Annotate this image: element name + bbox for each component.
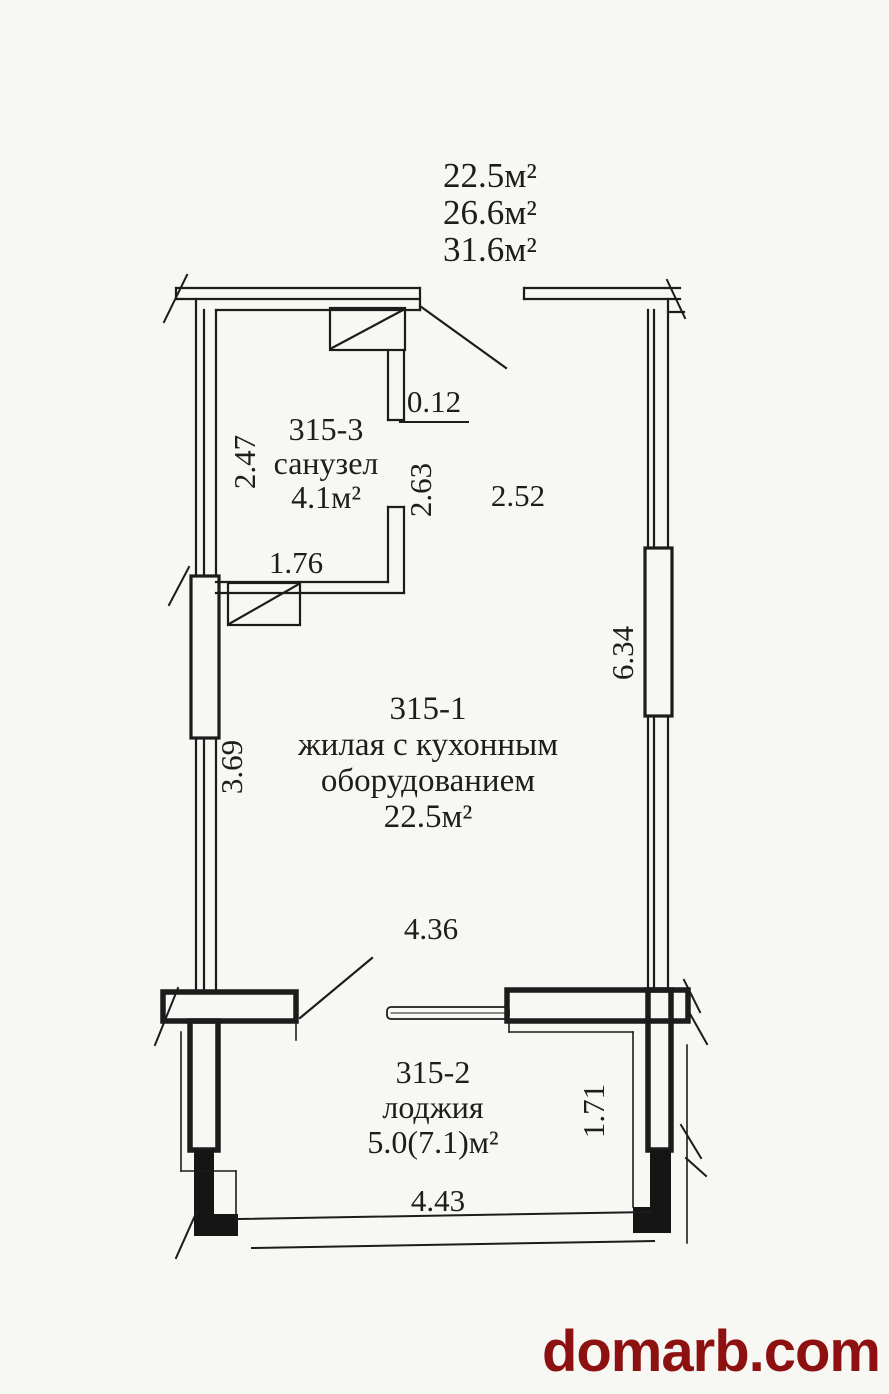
room-living-area: 22.5м² xyxy=(298,799,558,835)
dim-living-left-wall: 3.69 xyxy=(214,717,250,817)
room-bathroom-area: 4.1м² xyxy=(236,480,416,514)
dim-loggia-depth: 1.71 xyxy=(576,1061,612,1161)
room-label-living: 315-1 жилая с кухонным оборудованием 22.… xyxy=(298,691,558,835)
watermark-domarb: domarb.com xyxy=(542,1318,880,1385)
room-living-name1: жилая с кухонным xyxy=(298,727,558,763)
room-living-name2: оборудованием xyxy=(298,763,558,799)
dim-loggia-width: 4.43 xyxy=(388,1183,488,1219)
dim-bathroom-door-wall: 1.76 xyxy=(246,545,346,581)
top-wall-left xyxy=(176,288,420,310)
area-summary-line-2: 26.6м² xyxy=(443,194,537,231)
dim-duct-offset: 0.12 xyxy=(399,384,469,423)
area-summary-line-1: 22.5м² xyxy=(443,157,537,194)
dim-living-right-wall: 6.34 xyxy=(605,603,641,703)
room-loggia-id: 315-2 xyxy=(323,1055,543,1090)
room-bathroom-name: санузел xyxy=(236,446,416,480)
top-wall-right xyxy=(524,288,684,312)
room-label-loggia: 315-2 лоджия 5.0(7.1)м² xyxy=(323,1055,543,1160)
dim-living-width: 4.36 xyxy=(381,911,481,947)
room-loggia-area: 5.0(7.1)м² xyxy=(323,1125,543,1160)
room-bathroom-id: 315-3 xyxy=(236,412,416,446)
balcony-door-threshold xyxy=(387,1007,509,1019)
dim-bathroom-width: 2.47 xyxy=(227,412,263,512)
dim-entry-width: 2.52 xyxy=(468,478,568,514)
leader-line-bottom xyxy=(300,958,372,1018)
bathroom-door-leaf xyxy=(228,583,300,625)
room-living-id: 315-1 xyxy=(298,691,558,727)
vent-shaft xyxy=(330,308,405,350)
room-loggia-name: лоджия xyxy=(323,1090,543,1125)
left-window xyxy=(191,576,219,738)
left-wall xyxy=(191,299,219,992)
leader-line-top xyxy=(420,306,506,368)
floor-plan-page: 22.5м² 26.6м² 31.6м² 315-3 санузел 4.1м²… xyxy=(0,0,889,1394)
right-window xyxy=(645,548,672,716)
dim-bathroom-height: 2.63 xyxy=(403,440,439,540)
right-wall xyxy=(645,299,672,990)
area-summary-line-3: 31.6м² xyxy=(443,231,537,268)
room-label-bathroom: 315-3 санузел 4.1м² xyxy=(236,412,416,514)
area-summary: 22.5м² 26.6м² 31.6м² xyxy=(443,157,537,268)
